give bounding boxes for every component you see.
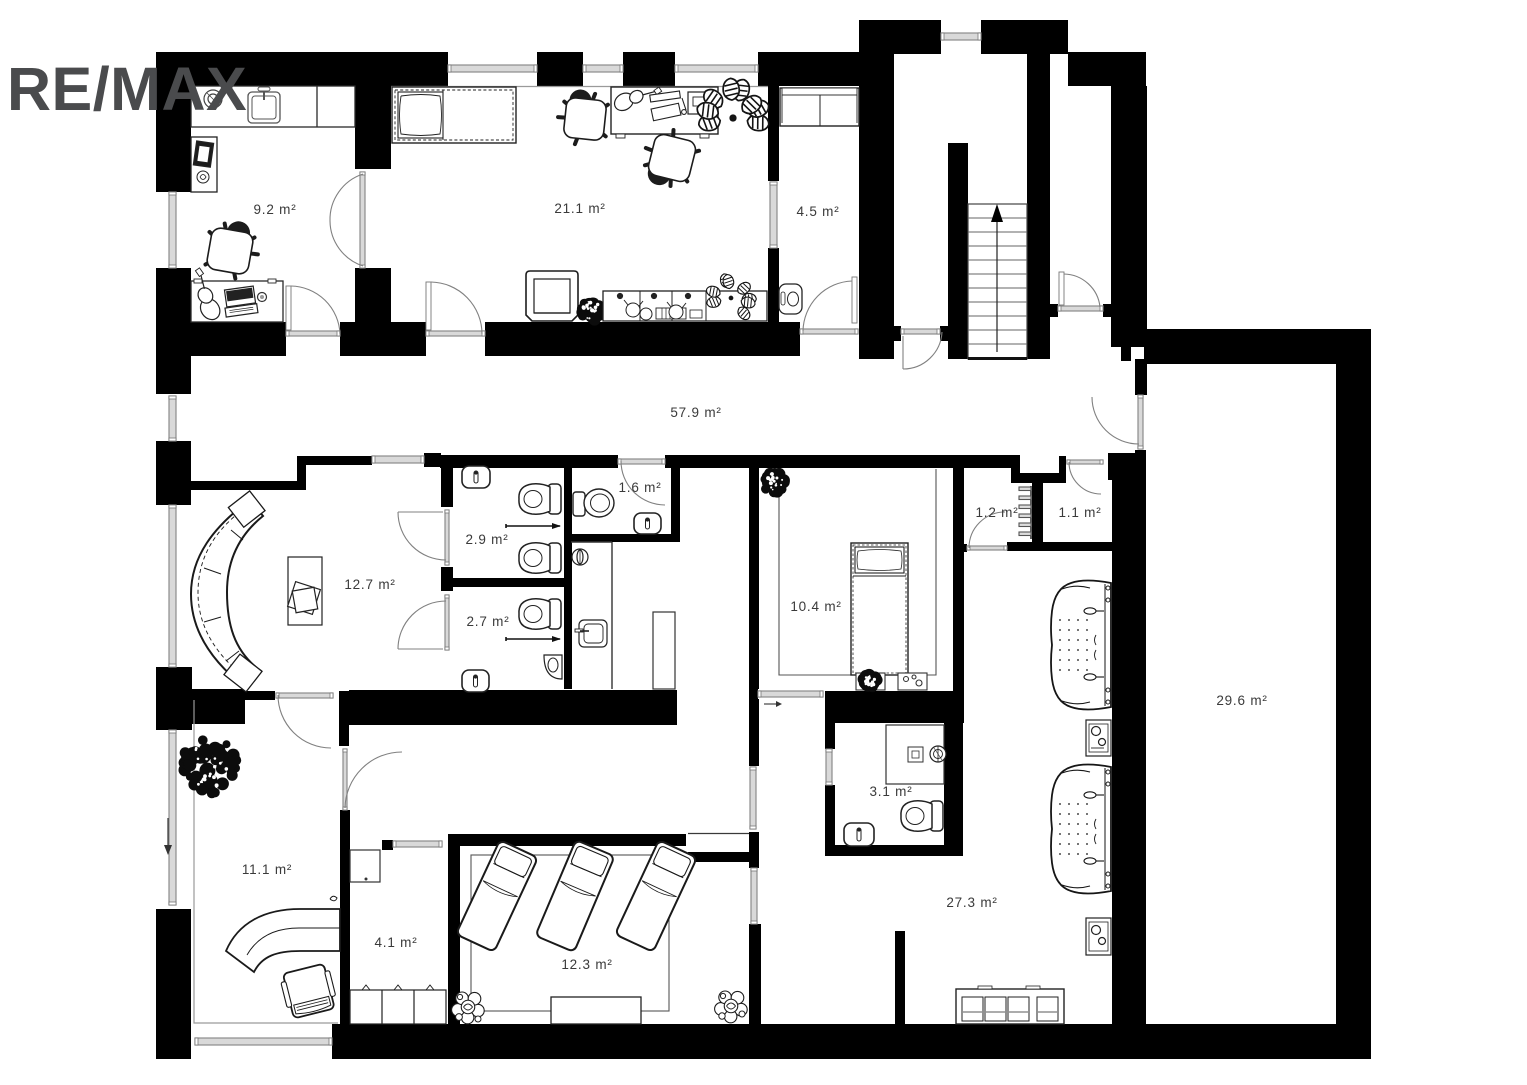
svg-text:10.4 m²: 10.4 m² <box>790 599 841 614</box>
svg-text:2.9 m²: 2.9 m² <box>465 532 508 547</box>
svg-text:RE/MAX: RE/MAX <box>7 55 247 123</box>
svg-text:9.2 m²: 9.2 m² <box>253 202 296 217</box>
svg-text:12.7 m²: 12.7 m² <box>344 577 395 592</box>
svg-text:12.3 m²: 12.3 m² <box>561 957 612 972</box>
svg-text:11.1 m²: 11.1 m² <box>242 862 292 877</box>
svg-text:1.2 m²: 1.2 m² <box>975 505 1018 520</box>
svg-text:3.1 m²: 3.1 m² <box>869 784 912 799</box>
svg-text:29.6 m²: 29.6 m² <box>1216 693 1267 708</box>
svg-text:27.3 m²: 27.3 m² <box>946 895 997 910</box>
svg-text:4.1 m²: 4.1 m² <box>374 935 417 950</box>
svg-text:21.1 m²: 21.1 m² <box>554 201 605 216</box>
svg-text:1.6 m²: 1.6 m² <box>618 480 661 495</box>
svg-text:57.9 m²: 57.9 m² <box>670 405 721 420</box>
svg-text:4.5 m²: 4.5 m² <box>796 204 839 219</box>
svg-text:1.1 m²: 1.1 m² <box>1058 505 1101 520</box>
svg-text:2.7 m²: 2.7 m² <box>466 614 509 629</box>
